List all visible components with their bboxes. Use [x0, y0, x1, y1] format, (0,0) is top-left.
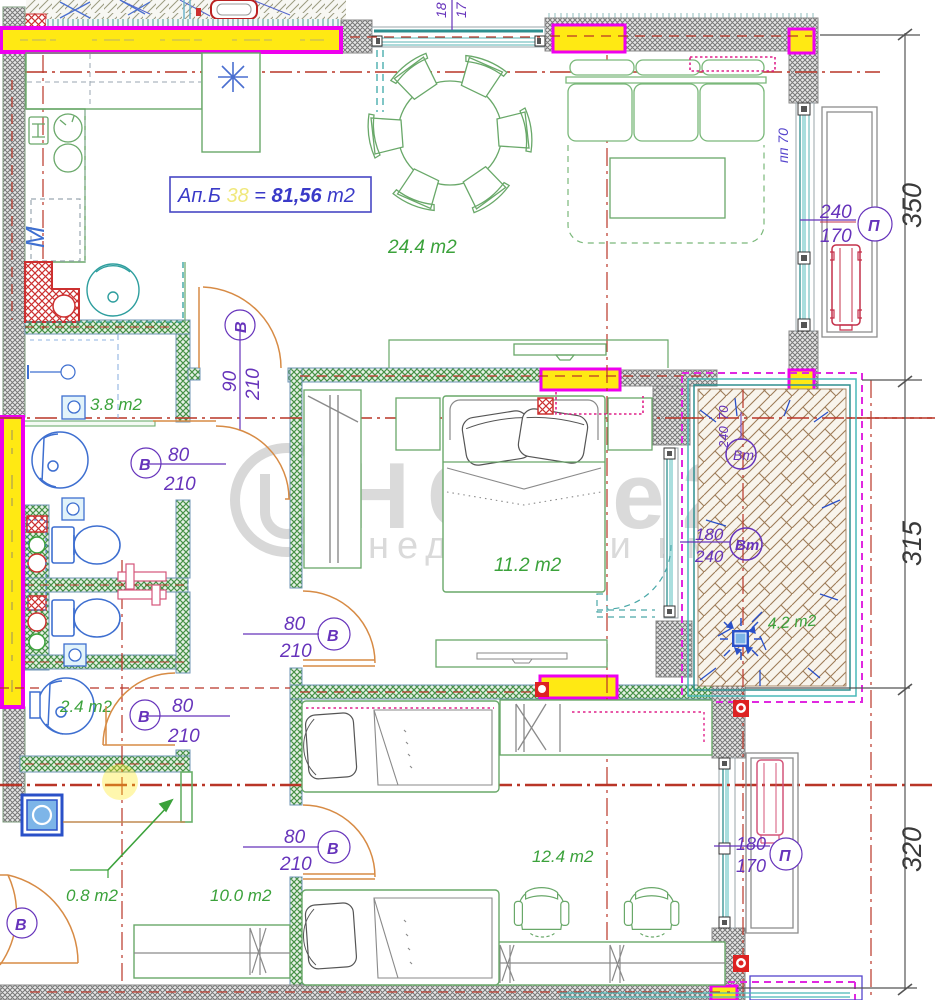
svg-text:80: 80 [168, 445, 190, 466]
svg-text:350: 350 [897, 183, 927, 228]
svg-text:Ап.Б 38 = 81,56 m2: Ап.Б 38 = 81,56 m2 [177, 185, 355, 207]
svg-text:90: 90 [220, 370, 241, 392]
svg-text:18: 18 [433, 2, 449, 18]
svg-text:180: 180 [695, 525, 724, 544]
svg-text:3.8 m2: 3.8 m2 [90, 395, 143, 414]
svg-text:170: 170 [736, 856, 766, 876]
svg-text:210: 210 [167, 726, 200, 747]
svg-text:210: 210 [163, 474, 196, 495]
svg-text:В: В [139, 457, 151, 474]
svg-text:2.4 m2: 2.4 m2 [59, 697, 113, 716]
svg-text:210: 210 [243, 368, 264, 401]
svg-text:210: 210 [279, 854, 312, 875]
svg-text:70: 70 [716, 405, 731, 420]
svg-text:В: В [138, 709, 150, 726]
svg-text:В: В [327, 628, 339, 645]
svg-text:10.0 m2: 10.0 m2 [210, 886, 272, 905]
svg-text:240: 240 [694, 547, 724, 566]
svg-text:В: В [327, 841, 339, 858]
svg-text:0.8 m2: 0.8 m2 [66, 886, 119, 905]
svg-text:П: П [779, 848, 791, 865]
svg-text:80: 80 [284, 827, 306, 848]
svg-text:24.4 m2: 24.4 m2 [387, 237, 457, 258]
svg-text:4.2 m2: 4.2 m2 [767, 613, 817, 633]
svg-text:В: В [233, 321, 250, 333]
svg-text:пп 70: пп 70 [775, 128, 791, 163]
svg-text:В: В [15, 917, 27, 934]
svg-text:12.4 m2: 12.4 m2 [532, 847, 594, 866]
svg-text:170: 170 [820, 226, 852, 247]
svg-text:П: П [868, 218, 880, 235]
svg-text:320: 320 [897, 827, 927, 872]
svg-text:Вт: Вт [735, 537, 759, 554]
svg-text:М: М [20, 226, 50, 248]
svg-text:17: 17 [453, 1, 469, 18]
svg-text:Вт: Вт [733, 447, 754, 463]
svg-text:11.2 m2: 11.2 m2 [494, 555, 562, 576]
svg-text:80: 80 [284, 614, 306, 635]
svg-text:240: 240 [716, 426, 731, 449]
svg-text:315: 315 [897, 520, 927, 566]
svg-text:210: 210 [279, 641, 312, 662]
svg-text:180: 180 [736, 834, 766, 854]
svg-text:80: 80 [172, 696, 194, 717]
